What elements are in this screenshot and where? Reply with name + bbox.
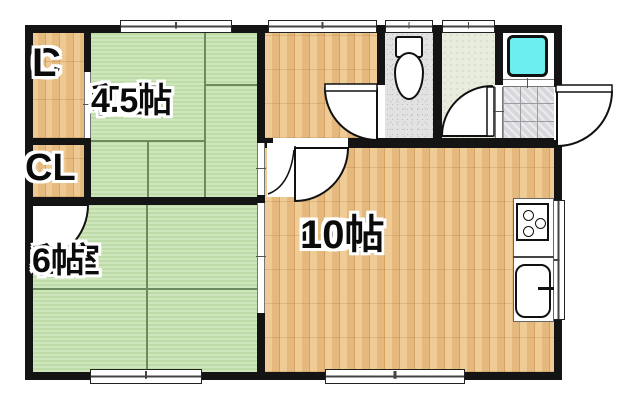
stove-icon	[516, 203, 549, 241]
door-hall-ldk-right-swing	[295, 148, 348, 201]
room-size: 10帖	[300, 214, 385, 256]
faucet-icon	[538, 287, 554, 290]
door-hall-ldk-left-leaf	[267, 143, 295, 197]
burner-icon	[523, 210, 534, 221]
door-toilet-swing	[325, 88, 377, 140]
door-entrance-swing	[557, 91, 612, 146]
door-washroom-leaf	[487, 87, 494, 136]
closet-label: CL	[25, 148, 76, 188]
room-size: 6帖	[32, 243, 85, 279]
counter-divider	[513, 256, 554, 258]
door-entrance-leaf	[556, 85, 612, 92]
sink-icon	[515, 264, 551, 318]
burner-icon	[535, 218, 546, 229]
burner-icon	[523, 226, 534, 237]
door-washroom-swing	[442, 86, 492, 136]
closet-letter: L	[32, 44, 56, 82]
room-size: 4.5帖	[91, 83, 172, 119]
door-toilet-leaf	[325, 84, 377, 91]
floor-plan: 和室 4.5帖 和室 6帖 LDK 10帖 C L CL	[0, 0, 640, 400]
bathtub-icon	[507, 35, 548, 77]
